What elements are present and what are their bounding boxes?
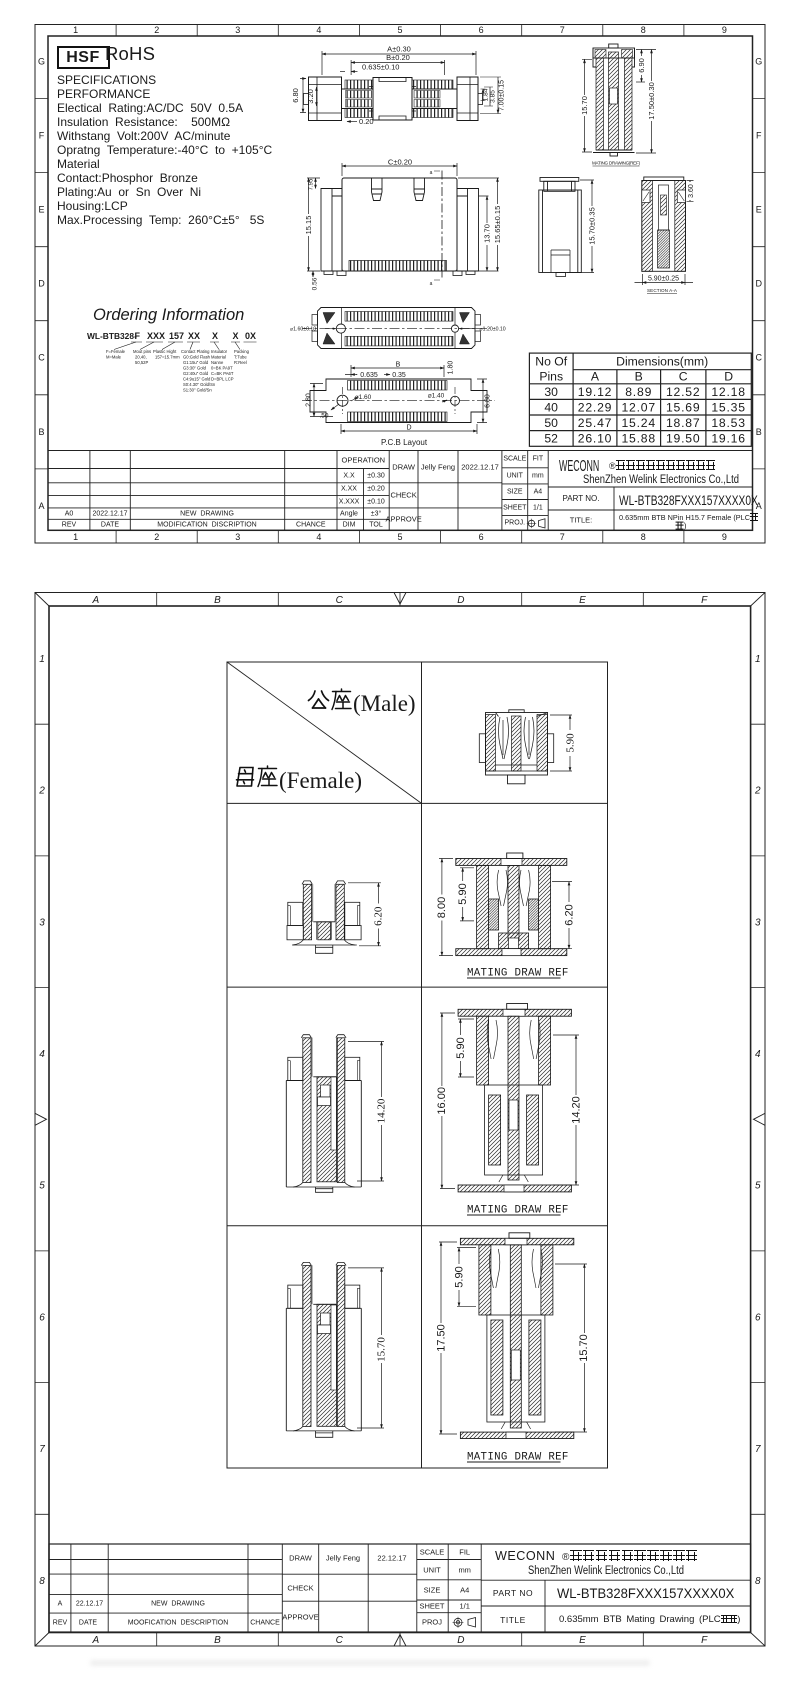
svg-text:157=15.7mm: 157=15.7mm bbox=[155, 355, 180, 360]
svg-text:SECTION A-A: SECTION A-A bbox=[647, 288, 678, 293]
svg-text:Material: Material bbox=[211, 355, 226, 360]
svg-text:15.15: 15.15 bbox=[304, 216, 313, 235]
svg-text:0.635±0.10: 0.635±0.10 bbox=[362, 63, 399, 72]
svg-text:5.90: 5.90 bbox=[455, 1037, 467, 1058]
svg-text:a: a bbox=[430, 281, 433, 287]
svg-text:a: a bbox=[430, 170, 433, 176]
svg-text:5.90±0.25: 5.90±0.25 bbox=[648, 276, 679, 283]
svg-text:R:Reel: R:Reel bbox=[234, 360, 247, 365]
svg-text:15.70: 15.70 bbox=[580, 96, 589, 115]
svg-text:5.90: 5.90 bbox=[453, 1266, 465, 1287]
svg-text:D: D bbox=[406, 425, 411, 432]
svg-text:F=Female: F=Female bbox=[106, 349, 126, 354]
svg-text:14.20: 14.20 bbox=[570, 1096, 582, 1124]
svg-text:15.70: 15.70 bbox=[578, 1334, 590, 1362]
svg-text:S0:4.30" Gold/Sn: S0:4.30" Gold/Sn bbox=[183, 382, 216, 387]
svg-text:B±0.20: B±0.20 bbox=[386, 53, 410, 62]
svg-text:C4:9u15" Gold: C4:9u15" Gold bbox=[183, 377, 211, 382]
svg-text:B: B bbox=[396, 362, 401, 369]
svg-text:P.C.B Layout: P.C.B Layout bbox=[381, 438, 428, 447]
svg-text:G3:30" Gold: G3:30" Gold bbox=[183, 366, 207, 371]
svg-text:2.80: 2.80 bbox=[306, 393, 313, 407]
svg-text:6.90: 6.90 bbox=[637, 58, 646, 73]
svg-text:⌀1.60: ⌀1.60 bbox=[355, 394, 372, 401]
svg-text:5.90: 5.90 bbox=[457, 883, 469, 904]
svg-text:0.35: 0.35 bbox=[392, 372, 406, 379]
svg-text:13.70: 13.70 bbox=[483, 224, 492, 243]
svg-text:G0:Gold Flash: G0:Gold Flash bbox=[183, 355, 211, 360]
svg-text:6.20: 6.20 bbox=[563, 904, 575, 925]
svg-text:M=Male: M=Male bbox=[106, 355, 122, 360]
svg-text:6.20: 6.20 bbox=[372, 906, 384, 926]
svg-text:1.84: 1.84 bbox=[483, 88, 490, 101]
svg-text:6.80: 6.80 bbox=[291, 88, 300, 103]
svg-text:⌀1.60±0.10: ⌀1.60±0.10 bbox=[290, 326, 316, 332]
svg-text:17.50±0.30: 17.50±0.30 bbox=[647, 82, 656, 119]
svg-text:G1:15u" Gold: G1:15u" Gold bbox=[183, 360, 209, 365]
svg-text:16.00: 16.00 bbox=[436, 1087, 448, 1115]
svg-text:Insulator: Insulator bbox=[211, 349, 228, 354]
svg-text:⌀1.20±0.10: ⌀1.20±0.10 bbox=[480, 326, 506, 332]
svg-text:5.90: 5.90 bbox=[564, 733, 576, 753]
svg-text:S1:30" Gold/Sn: S1:30" Gold/Sn bbox=[183, 388, 212, 393]
svg-text:⌀1.40: ⌀1.40 bbox=[428, 393, 445, 400]
svg-text:0=BK PA9T: 0=BK PA9T bbox=[211, 366, 233, 371]
svg-text:G2:40u" Gold: G2:40u" Gold bbox=[183, 371, 209, 376]
svg-text:C=BK PA6T: C=BK PA6T bbox=[211, 371, 234, 376]
svg-text:D=BPL LCP: D=BPL LCP bbox=[211, 377, 234, 382]
svg-text:Contact Plating: Contact Plating bbox=[181, 349, 210, 354]
svg-text:15.70: 15.70 bbox=[375, 1337, 387, 1362]
svg-text:1.80: 1.80 bbox=[448, 361, 455, 375]
svg-text:7.00±0.15: 7.00±0.15 bbox=[499, 80, 506, 111]
svg-text:0.56: 0.56 bbox=[312, 277, 319, 290]
svg-text:Nanne: Nanne bbox=[211, 360, 224, 365]
svg-text:C±0.20: C±0.20 bbox=[388, 158, 412, 167]
svg-text:17.50: 17.50 bbox=[435, 1324, 447, 1352]
svg-text:3.85: 3.85 bbox=[490, 90, 497, 103]
svg-text:3.20: 3.20 bbox=[306, 89, 315, 104]
svg-text:15.65±0.15: 15.65±0.15 bbox=[493, 206, 502, 243]
svg-text:MATING DRAWING(REF): MATING DRAWING(REF) bbox=[592, 161, 640, 166]
svg-text:0.20: 0.20 bbox=[359, 117, 374, 126]
svg-text:6.80: 6.80 bbox=[485, 394, 492, 408]
svg-text:3.60: 3.60 bbox=[688, 184, 695, 198]
svg-text:0.635: 0.635 bbox=[360, 372, 378, 379]
svg-text:8.00: 8.00 bbox=[436, 897, 448, 918]
svg-text:7.95: 7.95 bbox=[309, 178, 315, 190]
svg-text:Mout pins: Mout pins bbox=[133, 349, 151, 354]
svg-text:50,52P: 50,52P bbox=[135, 360, 148, 365]
svg-text:.50: .50 bbox=[319, 413, 328, 420]
svg-text:Packing: Packing bbox=[234, 349, 250, 354]
svg-text:15.70±0.35: 15.70±0.35 bbox=[588, 207, 597, 244]
svg-text:20,40,: 20,40, bbox=[135, 355, 147, 360]
svg-text:Plastic Hight: Plastic Hight bbox=[153, 349, 177, 354]
svg-text:T:Tube: T:Tube bbox=[234, 355, 247, 360]
svg-text:14.20: 14.20 bbox=[375, 1098, 387, 1123]
